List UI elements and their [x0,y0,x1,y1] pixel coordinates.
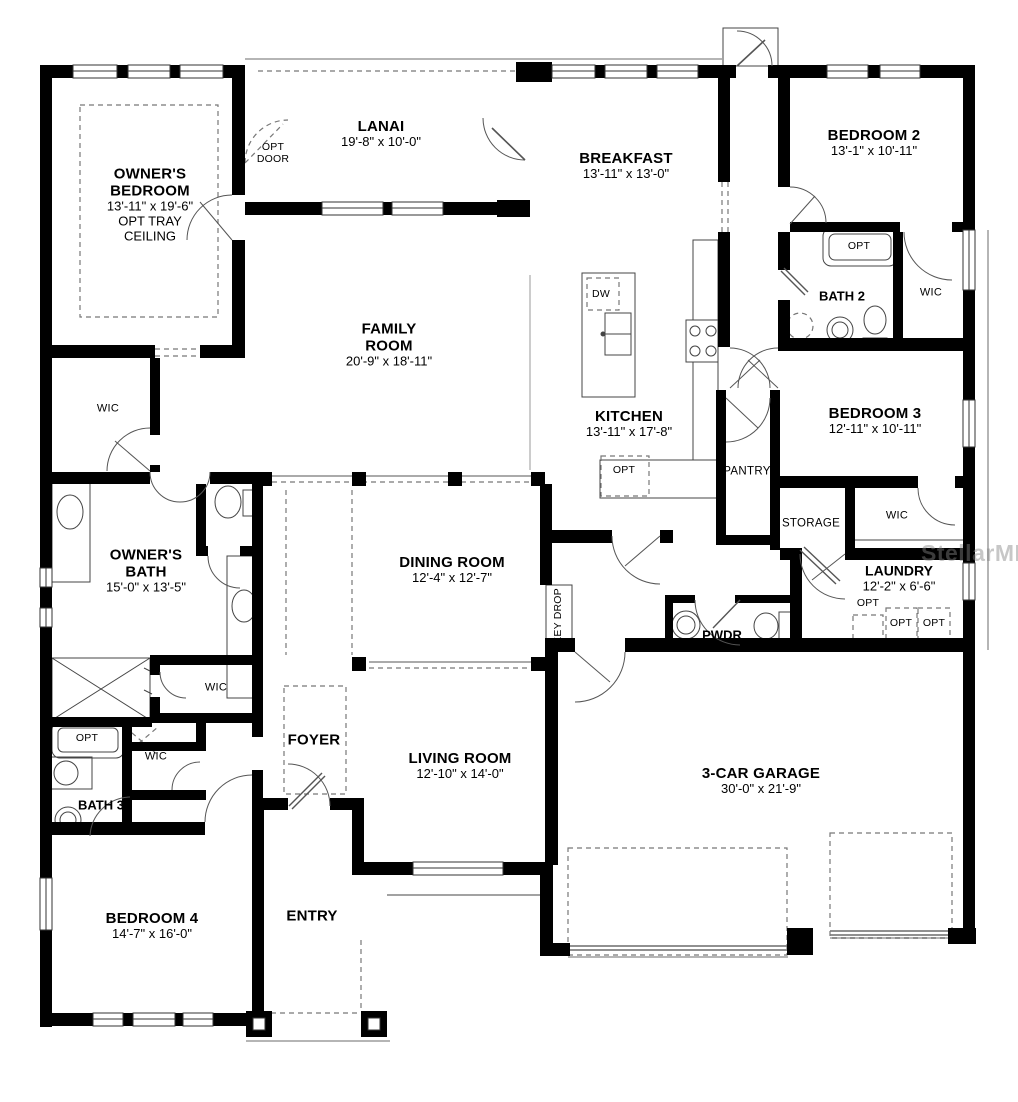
wic-label-laundry: WIC [886,510,908,523]
dw-label: DW [592,289,610,301]
wic-label-bed2: WIC [920,287,942,300]
wic-label-hall2: WIC [145,751,167,764]
room-label-breakfast: BREAKFAST13'-11" x 13'-0" [546,150,706,182]
room-label-living-room: LIVING ROOM12'-10" x 14'-0" [400,750,520,782]
room-label-bedroom2: BEDROOM 213'-1" x 10'-11" [794,127,954,159]
room-label-bedroom3: BEDROOM 312'-11" x 10'-11" [790,405,960,437]
opt-label-bath2-tub: OPT [848,241,870,253]
room-label-dining-room: DINING ROOM12'-4" x 12'-7" [397,554,507,586]
opt-label-laundry-2: OPT [890,618,912,630]
room-label-owners-bath: OWNER'S BATH15'-0" x 13'-5" [91,547,201,596]
pwdr-label: PWDR [702,629,742,644]
room-label-foyer: FOYER [288,731,341,748]
room-label-bath3: BATH 3 [77,799,125,814]
watermark: StellarMLS [921,540,1018,567]
room-label-bedroom4: BEDROOM 414'-7" x 16'-0" [67,910,237,942]
wic-label-hall1: WIC [205,682,227,695]
key-drop-label: KEY DROP [553,588,565,644]
room-label-owners-bedroom: OWNER'S BEDROOM 13'-11" x 19'-6" OPT TRA… [75,166,225,245]
wic-label-owner: WIC [97,403,119,416]
room-label-kitchen: KITCHEN13'-11" x 17'-8" [559,408,699,440]
room-label-garage: 3-CAR GARAGE30'-0" x 21'-9" [701,765,821,797]
opt-label-laundry-1: OPT [857,598,879,610]
floor-plan: OWNER'S BEDROOM 13'-11" x 19'-6" OPT TRA… [0,0,1018,1102]
room-label-bath2: BATH 2 [807,290,877,305]
room-label-family-room: FAMILY ROOM20'-9" x 18'-11" [339,321,439,370]
opt-label-kitchen: OPT [613,465,635,477]
room-label-lanai: LANAI19'-8" x 10'-0" [301,118,461,150]
opt-door-label: OPT DOOR [250,142,296,166]
room-label-entry: ENTRY [286,907,337,924]
opt-label-owners-tub: OPT [76,733,98,745]
pantry-label: PANTRY [723,465,770,478]
room-label-laundry: LAUNDRY12'-2" x 6'-6" [824,564,974,595]
opt-label-laundry-3: OPT [923,618,945,630]
storage-label: STORAGE [782,517,840,530]
